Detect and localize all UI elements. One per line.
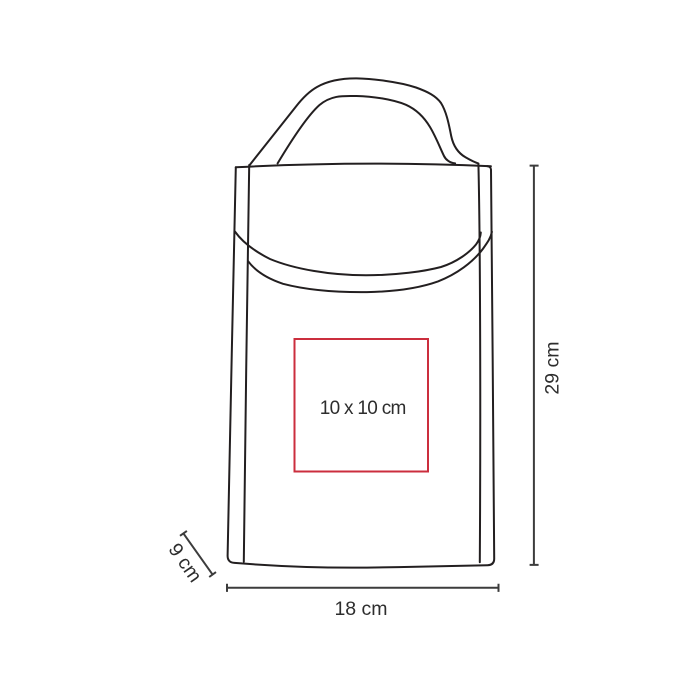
svg-text:10 x 10 cm: 10 x 10 cm xyxy=(320,398,406,419)
svg-text:9 cm: 9 cm xyxy=(164,539,206,586)
svg-text:29 cm: 29 cm xyxy=(542,341,564,394)
svg-text:18 cm: 18 cm xyxy=(334,598,387,620)
